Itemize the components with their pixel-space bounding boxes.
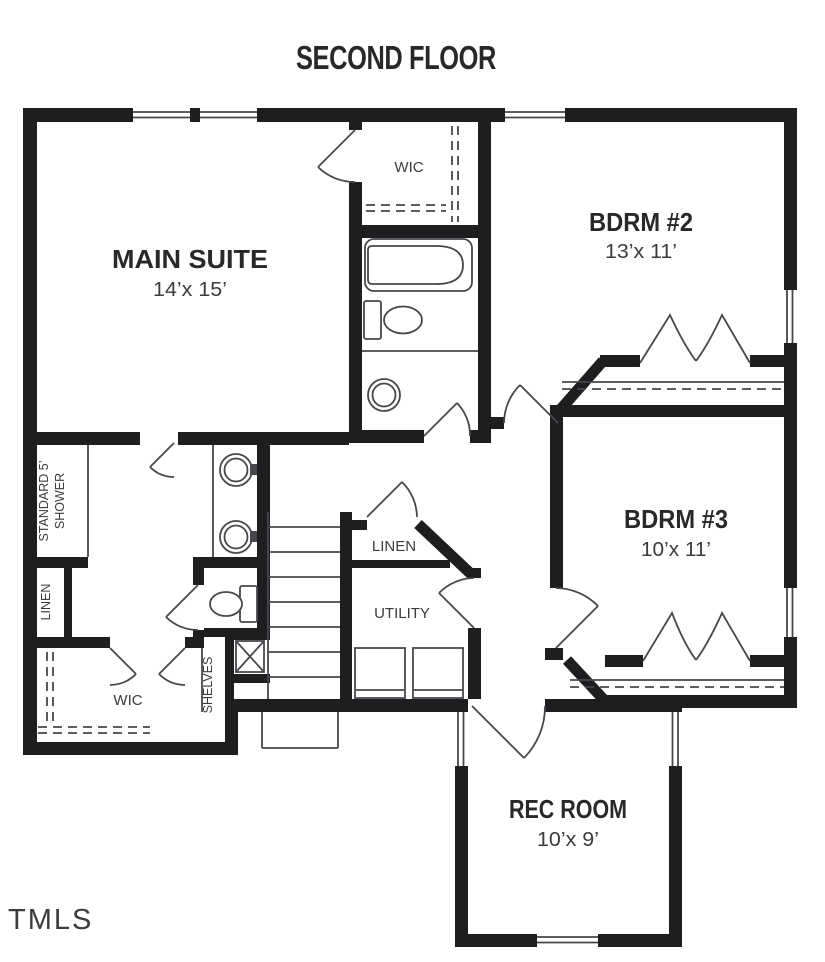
- bathtub: [365, 239, 472, 291]
- labels: SECOND FLOOR MAIN SUITE 14’x 15’ BDRM #2…: [8, 39, 728, 936]
- page-title: SECOND FLOOR: [296, 39, 497, 76]
- toilet-main-bath: [364, 301, 422, 339]
- label-wic-top: WIC: [394, 159, 423, 176]
- door-utility: [439, 578, 474, 628]
- window-mullion: [190, 108, 200, 122]
- double-vanity: [213, 445, 257, 557]
- fixtures: [88, 239, 478, 698]
- door-water-closet: [166, 585, 198, 630]
- floor-plan-page: SECOND FLOOR MAIN SUITE 14’x 15’ BDRM #2…: [0, 0, 825, 962]
- dims-bdrm3: 10’x 11’: [641, 539, 711, 561]
- bifold-doors-closet-bdrm3: [643, 613, 750, 661]
- faucet-icon: [250, 464, 257, 475]
- window-rec-left: [458, 712, 464, 766]
- label-rec-room: REC ROOM: [509, 794, 627, 824]
- door-rec-room: [472, 706, 545, 758]
- double-doors-wic-bottom: [110, 648, 185, 685]
- label-shelves: SHELVES: [201, 657, 215, 714]
- door-bdrm2: [504, 385, 558, 423]
- washer-dryer: [355, 648, 463, 698]
- window-bdrm2-right: [787, 290, 793, 343]
- angled-wall-bdrm2-closet: [560, 361, 603, 410]
- window-rec-bottom: [537, 937, 598, 943]
- label-shower-line2: SHOWER: [53, 473, 67, 529]
- label-wic-bottom: WIC: [113, 692, 142, 709]
- toilet-water-closet: [210, 586, 257, 622]
- staircase: [262, 512, 340, 748]
- faucet-icon: [250, 531, 257, 542]
- bifold-doors-closet-bdrm2: [640, 315, 750, 363]
- window-bdrm2-top: [505, 112, 565, 118]
- window-rec-right: [673, 712, 679, 766]
- label-bdrm3: BDRM #3: [624, 504, 728, 534]
- label-linen-left: LINEN: [39, 584, 53, 621]
- sink-main-bath: [368, 379, 400, 411]
- label-main-suite: MAIN SUITE: [112, 244, 268, 274]
- angled-wall-bdrm3-closet: [567, 660, 606, 702]
- label-shower-line1: STANDARD 5’: [37, 460, 51, 541]
- stair-treads: [268, 512, 340, 699]
- door-main-suite-bath: [150, 443, 174, 477]
- door-main-suite-wic: [318, 130, 355, 182]
- dims-main-suite: 14’x 15’: [153, 279, 227, 301]
- watermark: TMLS: [8, 904, 93, 936]
- door-bdrm3: [556, 588, 598, 648]
- window-bdrm3-right: [787, 588, 793, 637]
- dims-bdrm2: 13’x 11’: [605, 241, 677, 263]
- dims-rec-room: 10’x 9’: [537, 829, 599, 851]
- stairwell-outline-below: [262, 712, 338, 748]
- door-hall-bath: [424, 403, 470, 436]
- floor-plan-drawing: SECOND FLOOR MAIN SUITE 14’x 15’ BDRM #2…: [0, 0, 825, 962]
- chase-box: [236, 641, 264, 672]
- door-hall-linen: [367, 482, 417, 517]
- label-linen-center: LINEN: [372, 538, 416, 555]
- label-bdrm2: BDRM #2: [589, 207, 693, 237]
- label-utility: UTILITY: [374, 605, 430, 622]
